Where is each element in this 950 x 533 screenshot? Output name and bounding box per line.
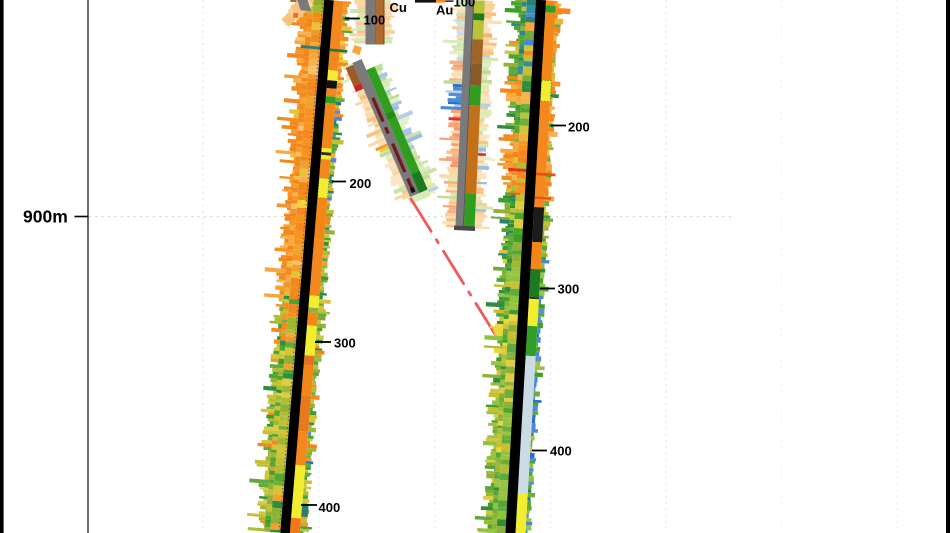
svg-text:200: 200 xyxy=(568,120,590,135)
svg-text:400: 400 xyxy=(550,444,572,459)
svg-text:300: 300 xyxy=(558,282,580,297)
svg-text:100: 100 xyxy=(364,13,386,28)
svg-text:200: 200 xyxy=(350,176,372,191)
svg-text:Cu: Cu xyxy=(390,0,407,15)
svg-text:300: 300 xyxy=(334,336,356,351)
svg-text:Au: Au xyxy=(436,3,453,18)
svg-text:900m: 900m xyxy=(23,207,68,227)
svg-text:400: 400 xyxy=(319,500,341,515)
svg-text:100: 100 xyxy=(454,0,476,10)
